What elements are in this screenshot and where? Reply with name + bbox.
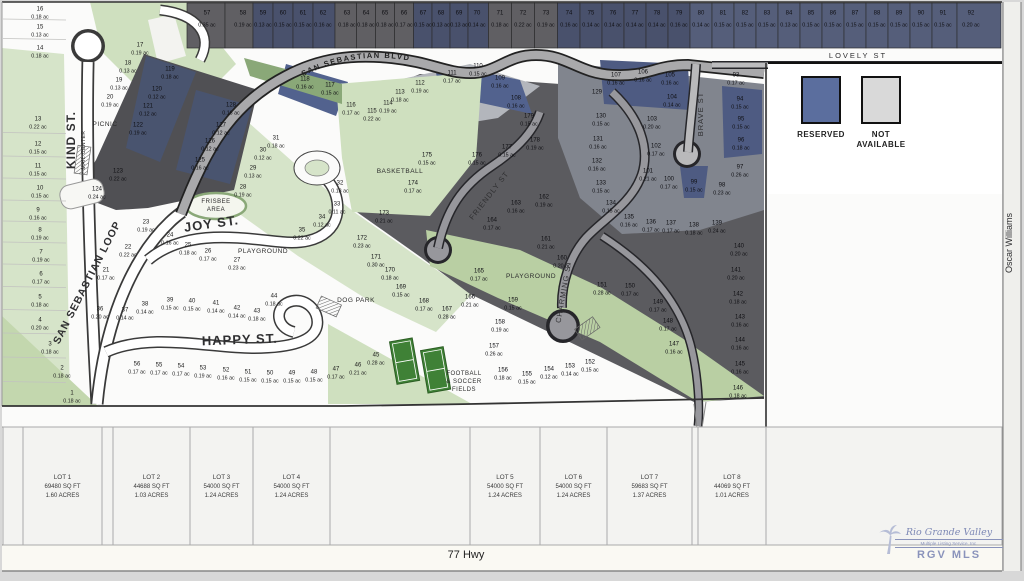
street-label: BRAVE ST — [696, 92, 705, 137]
street-label: HAPPY ST. — [202, 331, 278, 349]
legend-label-reserved: RESERVED — [790, 130, 852, 140]
reserved-swatch — [801, 76, 841, 124]
highway-label: 77 Hwy — [2, 549, 930, 561]
legend-item-not-available: NOT AVAILABLE — [850, 76, 912, 150]
oscar-williams-road — [1003, 2, 1021, 571]
kind-st-bulb-fill — [75, 33, 102, 60]
logo-script-text: Rio Grande Valley — [895, 527, 1003, 540]
amenity-label: MAIL CENTER — [81, 131, 87, 170]
amenity-label: BASKETBALL — [377, 168, 424, 175]
amenity-label: DOG PARK — [337, 297, 375, 304]
street-label: LOVELY ST — [829, 51, 887, 60]
lot-label: 129 — [592, 90, 603, 96]
pond-island — [305, 160, 329, 176]
legend-item-reserved: RESERVED — [790, 76, 852, 140]
street-label: Oscar Williams — [1004, 213, 1014, 273]
logo-rgv-mls: RGV MLS — [895, 549, 1003, 561]
legend-label-not-available: NOT AVAILABLE — [852, 130, 910, 150]
amenity-label: PLAYGROUND — [238, 248, 288, 255]
amenity-label: PLAYGROUND — [506, 273, 556, 280]
legend: RESERVED NOT AVAILABLE — [768, 64, 1002, 194]
plat-page: 10.18 ac20.18 ac30.18 ac40.20 ac50.18 ac… — [0, 0, 1024, 581]
logo-subtitle: Multiple Listing Service, Inc. — [895, 540, 1003, 548]
street-label: KIND ST. — [64, 111, 78, 169]
not-available-swatch — [861, 76, 901, 124]
amenity-label: PICNIC — [92, 121, 117, 128]
rgv-mls-logo: Rio Grande Valley Multiple Listing Servi… — [895, 527, 1003, 561]
